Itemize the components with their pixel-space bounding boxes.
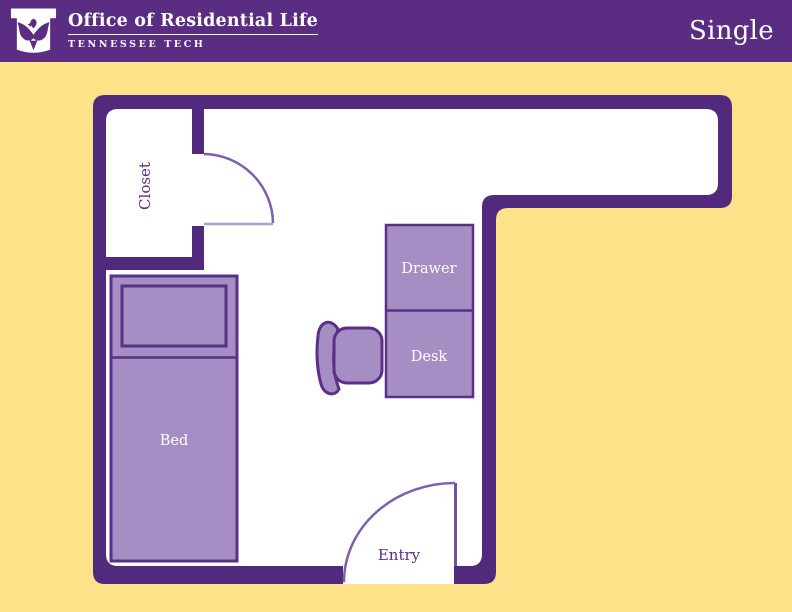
entry-doorway-opening — [343, 563, 454, 584]
closet-label: Closet — [136, 162, 154, 210]
drawer-label: Drawer — [401, 261, 456, 277]
chair-seat — [334, 328, 382, 383]
closet-wall-top-stub — [192, 109, 204, 154]
entry-label: Entry — [378, 546, 421, 564]
page-title: Single — [689, 16, 774, 46]
tennessee-tech-eagle-logo — [10, 6, 57, 56]
closet-wall-bottom — [98, 257, 204, 270]
org-subtitle: TENNESSEE TECH — [68, 39, 318, 50]
org-name: Office of Residential Life — [68, 12, 318, 35]
org-title-block: Office of Residential Life TENNESSEE TEC… — [68, 12, 318, 50]
pillow — [122, 286, 226, 346]
header-bar: Office of Residential Life TENNESSEE TEC… — [0, 0, 792, 62]
bed-label: Bed — [160, 433, 189, 449]
floor-plan: Closet Entry Bed Drawer Desk — [0, 0, 792, 612]
desk-label: Desk — [411, 349, 448, 365]
